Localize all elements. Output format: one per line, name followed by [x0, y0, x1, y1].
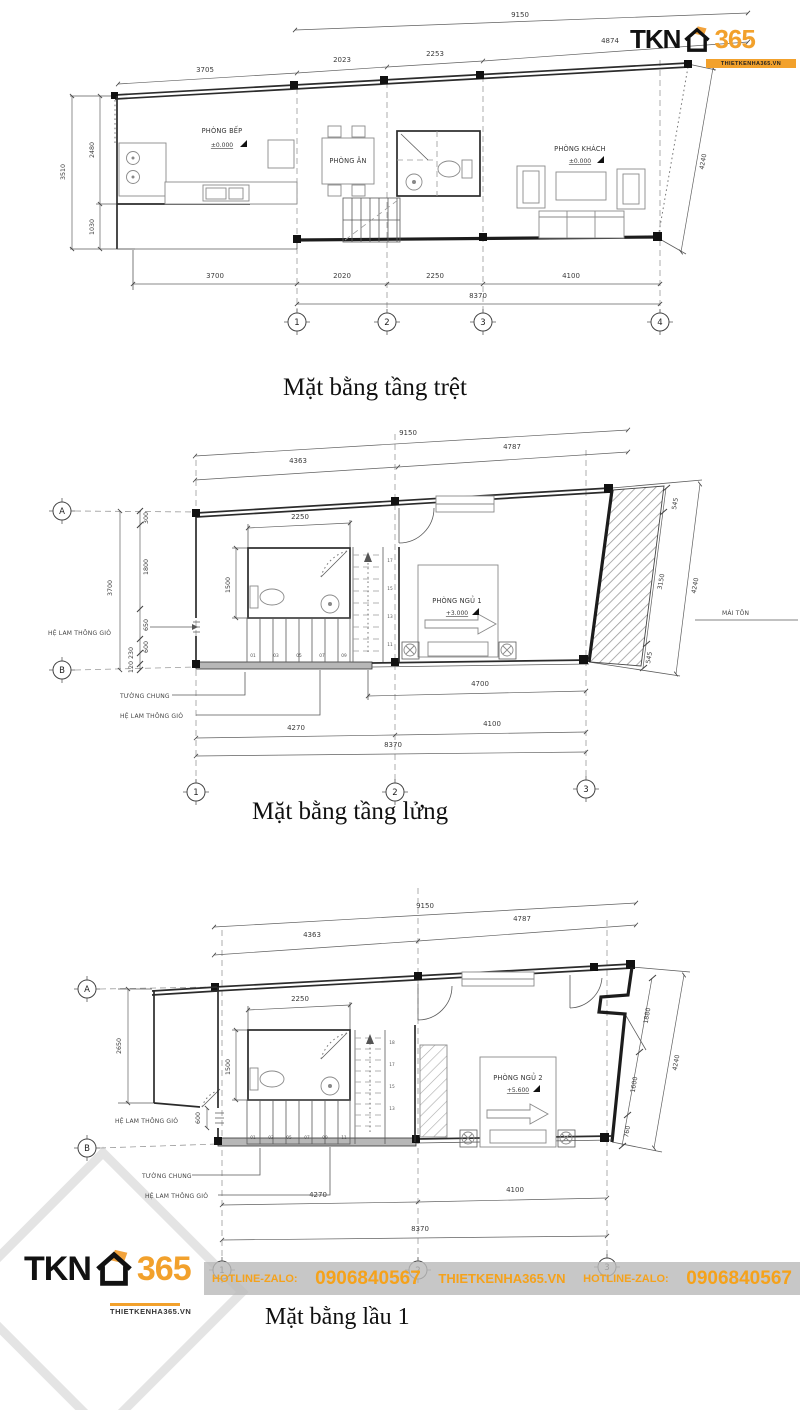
stair-step-number: 03: [273, 653, 279, 659]
grid-bubble-4: 4: [657, 318, 662, 328]
grid-bubble-B: B: [59, 666, 65, 676]
level-label: ±0.000: [569, 158, 591, 165]
dim-label: 3150: [657, 573, 667, 590]
dim-label: 2020: [333, 272, 351, 280]
dim-label: 4787: [513, 915, 531, 923]
grid-bubble-2: 2: [384, 318, 389, 328]
hotline-bar: HOTLINE-ZALO: 0906840567 THIETKENHA365.V…: [204, 1262, 800, 1295]
dim-label: 1880: [643, 1007, 653, 1024]
dim-label: 8370: [411, 1225, 429, 1233]
stair-step-number: 07: [304, 1135, 310, 1141]
plan3-dimensions: 9150 4363 4787 2650 600 4270 4100 8370 1…: [116, 902, 690, 1240]
caption-first-floor: Mặt bằng lầu 1: [265, 1304, 410, 1331]
grid-bubble-3: 3: [480, 318, 485, 328]
stair-step-number: 18: [389, 1040, 395, 1046]
stair-step-number: 05: [296, 653, 302, 659]
living-room: PHÒNG KHÁCH ±0.000: [517, 144, 645, 238]
bedroom-2: PHÒNG NGỦ 2 +5.600: [420, 972, 575, 1147]
dim-label: 4363: [303, 931, 321, 939]
louver-label: HỆ LAM THÔNG GIÓ: [48, 629, 111, 637]
stair-step-number: 13: [387, 614, 393, 620]
plan3-left-labels: HỆ LAM THÔNG GIÓ TƯỜNG CHUNG HỆ LAM THÔN…: [115, 1117, 330, 1200]
hotline-site: THIETKENHA365.VN: [438, 1271, 565, 1286]
louver-label: HỆ LAM THÔNG GIÓ: [115, 1117, 178, 1125]
stair-step-number: 11: [387, 642, 393, 648]
toilet-icon: [260, 1071, 284, 1087]
dining-room: PHÒNG ĂN: [322, 126, 374, 196]
plan3-walls: [152, 960, 635, 1146]
hotline-phone-1: 0906840567: [315, 1268, 421, 1290]
dim-label: 600: [195, 1112, 202, 1124]
dim-label: 2650: [116, 1038, 123, 1054]
dim-label: 4100: [506, 1186, 524, 1194]
toilet-icon: [438, 161, 460, 177]
dim-label: 1030: [89, 219, 96, 235]
dim-label: 1800: [143, 559, 150, 575]
shared-wall-label: TƯỜNG CHUNG: [141, 1173, 192, 1180]
dim-label: 2250: [291, 513, 309, 521]
stair-step-number: 05: [286, 1135, 292, 1141]
brand-365: 365: [137, 1250, 191, 1289]
bathroom: [397, 131, 480, 196]
level-label: +5.600: [507, 1087, 529, 1094]
dim-label: 650: [143, 619, 150, 631]
brand-site-label: THIETKENHA365.VN: [721, 61, 781, 67]
grid-bubble-1: 1: [294, 318, 299, 328]
dim-label: 2253: [426, 50, 444, 58]
brand-site-rule: [110, 1303, 180, 1306]
grid-bubble-A: A: [59, 507, 65, 517]
room-label-living: PHÒNG KHÁCH: [554, 144, 606, 153]
stair-step-number: 17: [387, 558, 393, 564]
stair-direction-arrow-icon: [366, 1034, 374, 1044]
dim-label: 545: [645, 651, 654, 664]
dim-label: 4270: [287, 724, 305, 732]
louver-label-2: HỆ LAM THÔNG GIÓ: [145, 1192, 208, 1200]
plan2-left-labels: HỆ LAM THÔNG GIÓ TƯỜNG CHUNG HỆ LAM THÔN…: [48, 629, 320, 720]
stair-direction-arrow-icon: [364, 552, 372, 562]
dim-label: 3510: [60, 164, 67, 180]
level-marker-icon: [597, 156, 604, 163]
toilet-icon: [260, 589, 284, 605]
stair-step-number: 11: [341, 1135, 347, 1141]
brand-365: 365: [714, 24, 754, 55]
dim-label: 9150: [416, 902, 434, 910]
caption-mezzanine: Mặt bằng tầng lửng: [252, 798, 448, 826]
stair-step-number: 17: [389, 1062, 395, 1068]
hotline-phone-2: 0906840567: [686, 1268, 792, 1290]
dim-label: 9150: [399, 429, 417, 437]
louver-label-2: HỆ LAM THÔNG GIÓ: [120, 712, 183, 720]
brand-site-bar: THIETKENHA365.VN: [706, 59, 796, 68]
grid-bubble-3: 3: [583, 785, 588, 795]
grid-bubble-2: 2: [392, 788, 397, 798]
plan1-grid-bubbles: 1 2 3 4: [284, 309, 673, 335]
stair-step-number: 07: [319, 653, 325, 659]
louver-arrow-icon: [192, 624, 198, 630]
stair-step-number: 15: [387, 586, 393, 592]
plan-first-floor: 9150 4363 4787 2650 600 4270 4100 8370 1…: [0, 880, 800, 1284]
bathroom: 2250 1500: [225, 995, 350, 1100]
dim-label: 8370: [469, 292, 487, 300]
room-label-bedroom1: PHÒNG NGỦ 1: [432, 595, 482, 605]
dim-label: 120: [128, 661, 135, 673]
stair-step-number: 01: [250, 653, 256, 659]
room-label-bedroom2: PHÒNG NGỦ 2: [493, 1072, 543, 1082]
dim-label: 230: [128, 647, 135, 659]
stair-step-number: 03: [268, 1135, 274, 1141]
plan2-walls: [150, 484, 664, 669]
dim-label: 600: [143, 641, 150, 653]
kitchen: PHÒNG BẾP ±0.000: [119, 125, 297, 204]
caption-ground-floor: Mặt bằng tầng trệt: [283, 374, 467, 402]
stairs: [343, 198, 400, 242]
dim-label: 760: [623, 1125, 632, 1138]
hotline-label-2: HOTLINE-ZALO:: [583, 1273, 669, 1285]
dim-label: 300: [143, 512, 150, 524]
level-label: +3.000: [446, 610, 468, 617]
dim-label: 545: [671, 497, 680, 510]
stair-step-number: 09: [322, 1135, 328, 1141]
brand-tkn: TKN: [24, 1250, 91, 1289]
shared-wall: [196, 662, 372, 669]
grid-bubble-B: B: [84, 1144, 90, 1154]
dim-label: 4100: [483, 720, 501, 728]
stair-step-number: 13: [389, 1106, 395, 1112]
dim-label: 3700: [107, 580, 114, 596]
dim-label: 2480: [89, 142, 96, 158]
dim-label: 4240: [699, 153, 709, 170]
dim-label: 4874: [601, 37, 619, 45]
brand-logo-top: TKN 365: [630, 24, 755, 55]
dim-label: 4240: [672, 1054, 682, 1071]
house-icon: [93, 1248, 135, 1290]
bathroom: 2250 1500: [225, 513, 350, 618]
dim-label: 4787: [503, 443, 521, 451]
dim-label: 9150: [511, 11, 529, 19]
brand-logo-bottom: TKN 365: [24, 1248, 191, 1290]
dim-label: 3700: [206, 272, 224, 280]
grid-bubble-A: A: [84, 985, 90, 995]
stair-step-number: 09: [341, 653, 347, 659]
grid-bubble-1: 1: [193, 788, 198, 798]
wardrobe: [420, 1045, 447, 1137]
level-label: ±0.000: [211, 142, 233, 149]
dim-label: 3705: [196, 66, 214, 74]
dim-label: 4363: [289, 457, 307, 465]
room-label-dining: PHÒNG ĂN: [329, 156, 366, 165]
house-icon: [682, 25, 712, 55]
dim-label: 2250: [291, 995, 309, 1003]
shared-wall: [218, 1138, 416, 1146]
level-marker-icon: [240, 140, 247, 147]
dim-label: 8370: [384, 741, 402, 749]
dim-label: 1500: [225, 577, 232, 593]
floor-plan-sheet: 9150 3705 2023 2253 4874 3510 2480 1030 …: [0, 0, 800, 1410]
dim-label: 2023: [333, 56, 351, 64]
dim-label: 4100: [562, 272, 580, 280]
dim-label: 1600: [630, 1076, 640, 1093]
brand-site-label: THIETKENHA365.VN: [110, 1307, 191, 1316]
dim-label: 2250: [426, 272, 444, 280]
dim-label: 4240: [691, 577, 701, 594]
stair-step-number: 01: [250, 1135, 256, 1141]
dim-label: 4700: [471, 680, 489, 688]
stair-step-number: 15: [389, 1084, 395, 1090]
roof-label: MÁI TÔN: [722, 610, 749, 617]
bedroom-1: PHÒNG NGỦ 1 +3.000: [402, 496, 516, 659]
shared-wall-label: TƯỜNG CHUNG: [119, 693, 170, 700]
room-label-kitchen: PHÒNG BẾP: [202, 125, 243, 135]
plan-mezzanine: 9150 4363 4787 3700 300 1800 650 600 230…: [0, 420, 800, 820]
dim-label: 1500: [225, 1059, 232, 1075]
brand-tkn: TKN: [630, 24, 680, 55]
hotline-label-1: HOTLINE-ZALO:: [212, 1273, 298, 1285]
